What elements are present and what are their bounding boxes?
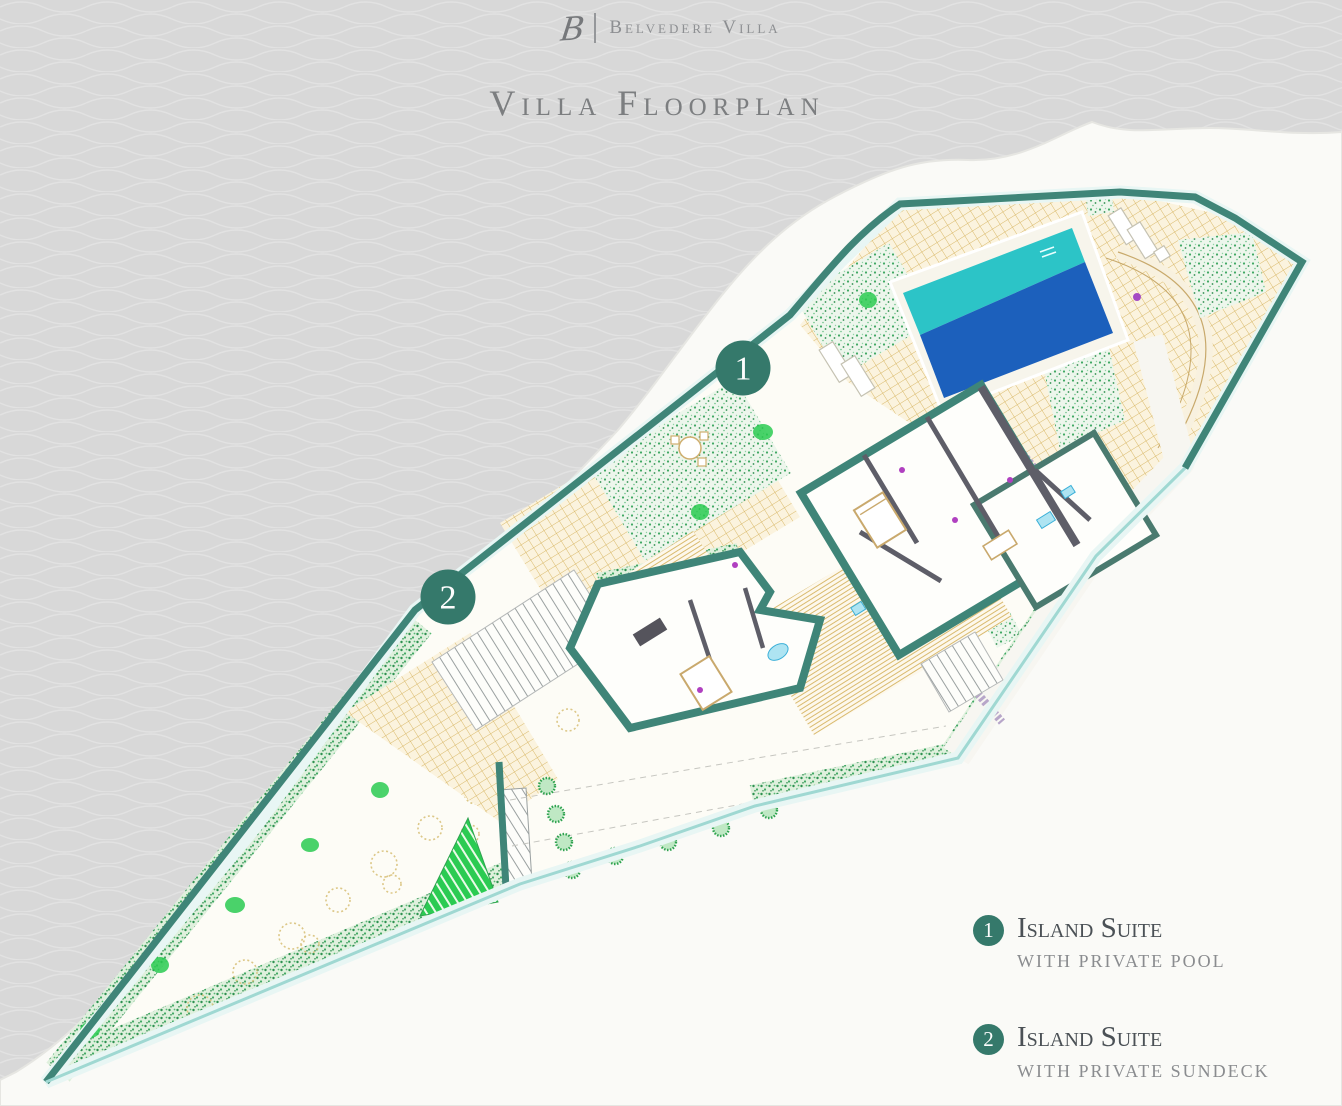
legend: 1 Island Suite with private pool 2 Islan…	[973, 913, 1270, 1106]
brand-name: Belvedere Villa	[609, 17, 780, 39]
flower-accent	[1133, 293, 1141, 301]
legend-title-2: Island Suite	[1017, 1022, 1270, 1052]
page-title: Villa Floorplan	[0, 82, 1314, 124]
legend-subtitle-1: with private pool	[1017, 951, 1226, 972]
brand-header: B Belvedere Villa	[0, 4, 1342, 52]
legend-marker-2: 2	[973, 1024, 1004, 1055]
legend-item-2: 2 Island Suite with private sundeck	[973, 1022, 1270, 1081]
brand-monogram: B	[559, 9, 584, 46]
legend-marker-1: 1	[973, 915, 1004, 946]
marker-1: 1	[716, 341, 771, 396]
marker-2: 2	[421, 570, 476, 625]
floorplan-page: 1 2 B Belvedere Villa Villa Floorplan 1 …	[0, 0, 1342, 1106]
legend-item-1: 1 Island Suite with private pool	[973, 913, 1270, 972]
svg-text:1: 1	[735, 351, 752, 388]
dining-table	[679, 437, 701, 459]
legend-title-1: Island Suite	[1017, 913, 1226, 943]
svg-text:2: 2	[440, 580, 457, 617]
brand-divider	[594, 13, 596, 43]
legend-subtitle-2: with private sundeck	[1017, 1061, 1270, 1082]
